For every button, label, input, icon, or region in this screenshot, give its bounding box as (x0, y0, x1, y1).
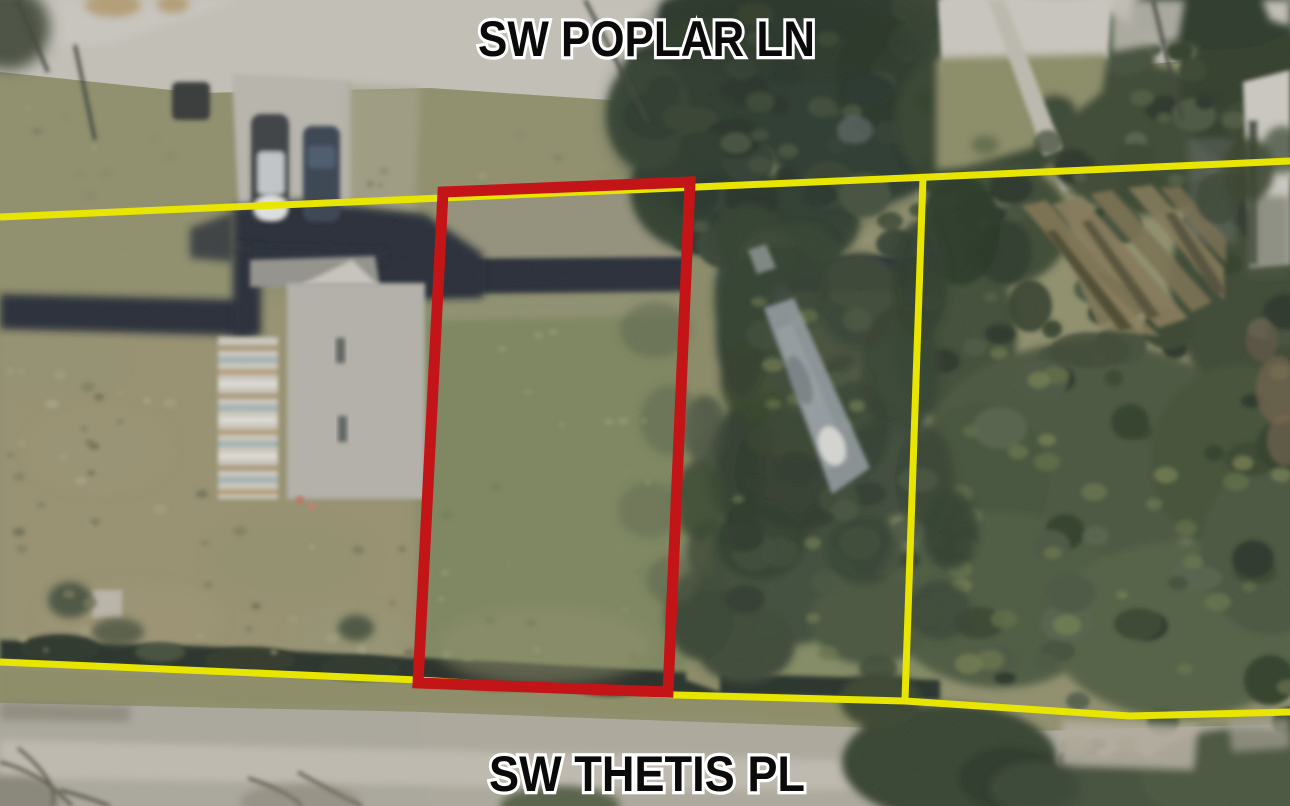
svg-text:SW POPLAR LN: SW POPLAR LN (478, 11, 815, 67)
svg-text:SW THETIS PL: SW THETIS PL (489, 746, 805, 802)
